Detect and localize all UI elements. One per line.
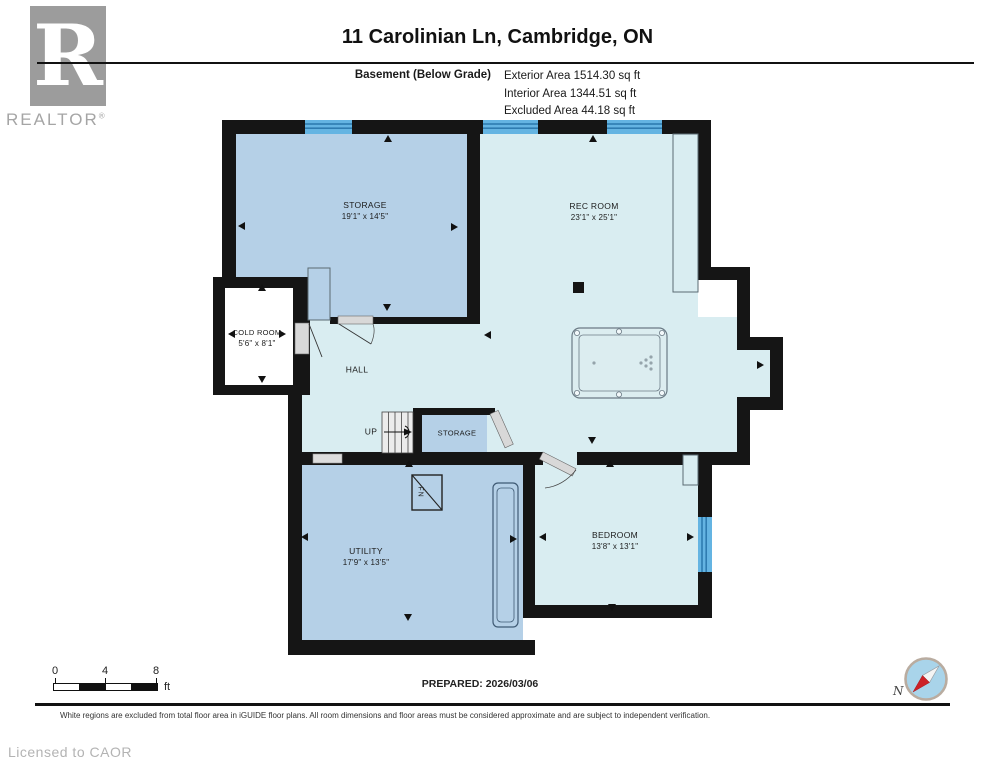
area-summary: Exterior Area 1514.30 sq ft Interior Are…: [504, 68, 640, 121]
floorplan-page: R REALTOR® 11 Carolinian Ln, Cambridge, …: [0, 0, 995, 768]
floorplan-drawing: [205, 115, 795, 660]
window-top-3: [607, 120, 662, 134]
page-title: 11 Carolinian Ln, Cambridge, ON: [0, 26, 995, 49]
furnace-label: FN: [417, 486, 424, 497]
floor-label: Basement (Below Grade): [355, 68, 491, 121]
interior-area: Interior Area 1344.51 sq ft: [504, 86, 640, 104]
exterior-area: Exterior Area 1514.30 sq ft: [504, 68, 640, 86]
utility-wall-opening: [313, 454, 342, 463]
compass-north-label: N: [893, 684, 904, 698]
realtor-logo-letter: R: [33, 6, 103, 106]
floor-info: Basement (Below Grade) Exterior Area 151…: [0, 68, 995, 121]
room-label-rec-room: REC ROOM 23'1" x 25'1": [569, 201, 618, 223]
compass-icon: [900, 653, 952, 705]
stairs-up-label: UP: [365, 427, 377, 438]
scale-tick-4: 4: [102, 665, 108, 677]
title-divider: [37, 62, 974, 64]
realtor-logo: R: [30, 6, 106, 106]
window-bedroom: [698, 517, 712, 572]
window-top-2: [483, 120, 538, 134]
room-label-hall: HALL: [346, 365, 368, 376]
scale-tick-8: 8: [153, 665, 159, 677]
room-label-bedroom: BEDROOM 13'8" x 13'1": [592, 530, 638, 552]
cue-ball: [592, 361, 595, 364]
disclaimer-text: White regions are excluded from total fl…: [35, 711, 735, 720]
window-top-1: [305, 120, 352, 134]
room-label-cold-room: COLD ROOM 5'6" x 8'1": [233, 327, 282, 349]
stairs: [382, 412, 413, 453]
scale-unit: ft: [164, 681, 170, 693]
prepared-date: PREPARED: 2026/03/06: [380, 678, 580, 690]
pool-table: [572, 328, 667, 398]
scale-tick-0: 0: [52, 665, 58, 677]
footer-divider: [35, 703, 950, 706]
license-text: Licensed to CAOR: [8, 744, 132, 760]
room-label-utility: UTILITY 17'9" x 13'5": [343, 546, 389, 568]
post: [573, 282, 584, 293]
room-label-storage: STORAGE 19'1" x 14'5": [342, 200, 388, 222]
room-label-storage-small: STORAGE: [438, 428, 477, 439]
floorplan: STORAGE 19'1" x 14'5" REC ROOM 23'1" x 2…: [205, 115, 795, 660]
